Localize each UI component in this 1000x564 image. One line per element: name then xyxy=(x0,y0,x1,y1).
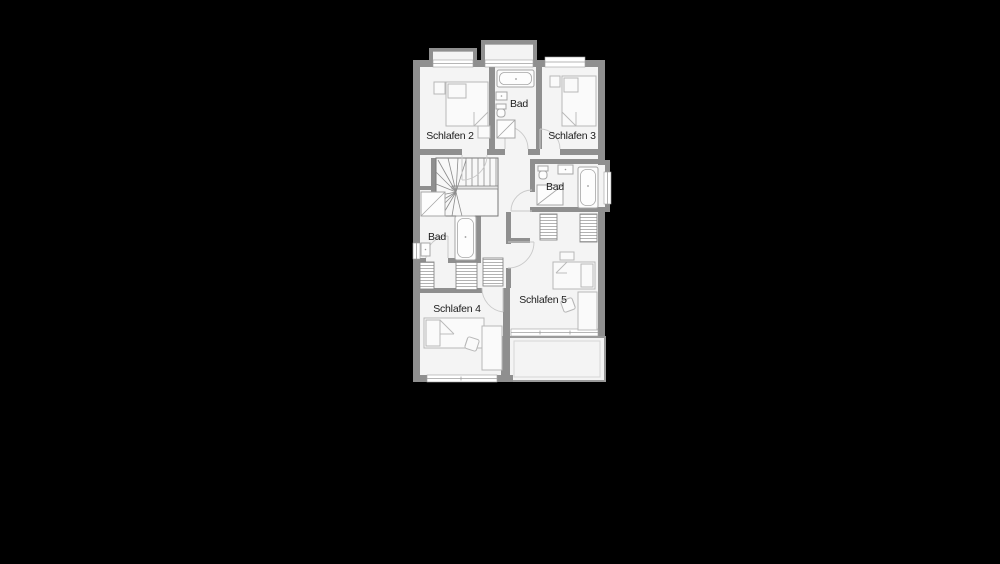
room-label-bad-top: Bad xyxy=(510,98,528,110)
room-label-schlafen-4: Schlafen 4 xyxy=(433,303,481,315)
room-label-schlafen-2: Schlafen 2 xyxy=(426,130,474,142)
pillow xyxy=(581,264,593,287)
sink xyxy=(421,243,430,256)
wardrobe xyxy=(540,214,557,240)
window xyxy=(545,57,585,67)
bed xyxy=(446,82,488,126)
floor-plan-svg: Schlafen 2 Bad Schlafen 3 xyxy=(0,0,1000,564)
dresser xyxy=(478,126,490,138)
bathtub xyxy=(578,167,598,208)
pillow xyxy=(564,78,578,92)
bed xyxy=(562,76,596,126)
sink xyxy=(558,165,573,174)
nightstand xyxy=(434,82,445,94)
window xyxy=(413,243,420,259)
room-label-bad-left: Bad xyxy=(428,231,446,243)
room-label-schlafen-5: Schlafen 5 xyxy=(519,294,567,306)
desk xyxy=(482,326,502,370)
bathtub xyxy=(497,70,534,87)
wardrobe xyxy=(420,262,434,289)
window xyxy=(427,375,497,382)
wardrobe xyxy=(580,214,597,242)
room-label-bad-right: Bad xyxy=(546,181,564,193)
sink xyxy=(496,92,507,100)
balcony xyxy=(508,336,606,382)
bathtub xyxy=(455,216,476,260)
toilet xyxy=(538,166,548,179)
desk xyxy=(578,292,597,330)
pillow xyxy=(448,84,466,98)
pillow xyxy=(426,320,440,346)
nightstand xyxy=(550,76,560,87)
wardrobe xyxy=(483,258,503,286)
shower xyxy=(497,120,515,138)
toilet xyxy=(496,104,506,117)
shower xyxy=(421,192,445,216)
wardrobe xyxy=(456,262,477,290)
room-label-schlafen-3: Schlafen 3 xyxy=(548,130,596,142)
window xyxy=(604,172,611,204)
floor-plan-page: Schlafen 2 Bad Schlafen 3 xyxy=(0,0,1000,564)
bed xyxy=(553,262,595,289)
shelf xyxy=(560,252,574,260)
